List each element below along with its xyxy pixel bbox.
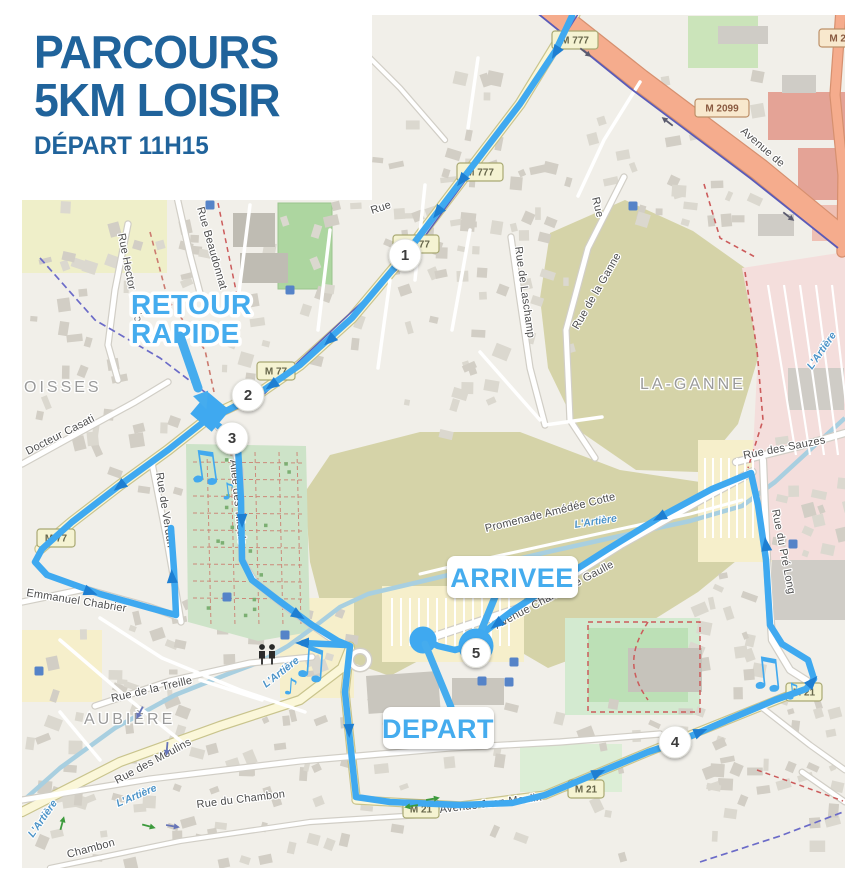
poster-title-line1: PARCOURS [34,28,362,76]
area-label-oisses: OISSES [24,379,102,396]
poster-page: Rue Beaudonnat Rue Hector Berlioz Docteu… [0,0,867,891]
waypoint-2: 2 [232,379,264,411]
svg-text:♪: ♪ [283,674,299,701]
area-label-laganne: LA-GANNE [640,376,746,393]
poster-subtitle-depart-time: DÉPART 11H15 [34,132,362,161]
svg-text:2: 2 [244,387,252,404]
svg-text:3: 3 [228,430,236,447]
waypoint-3: 3 [216,422,248,454]
badge-m2099-corner: M 2099 [819,29,867,47]
retour-rapide-label-line1: RETOUR [131,289,252,320]
poster-title-line2: 5KM LOISIR [34,76,362,124]
badge-m2099: M 2099 [695,99,749,117]
depart-label: DEPART [382,714,494,744]
waypoint-1: 1 [389,239,421,271]
svg-text:M 21: M 21 [575,785,598,796]
waypoint-4: 4 [659,726,691,758]
svg-text:♫: ♫ [744,646,789,701]
title-panel: PARCOURS 5KM LOISIR DÉPART 11H15 [0,0,372,200]
arrivee-label: ARRIVEE [450,563,574,593]
svg-text:4: 4 [671,734,680,751]
waypoint-5-arrivee: 5 [459,629,494,668]
svg-text:5: 5 [472,645,480,662]
svg-text:M 2099: M 2099 [705,104,739,115]
svg-text:1: 1 [401,247,409,264]
svg-text:M 2099: M 2099 [829,34,863,45]
svg-text:♪: ♪ [784,679,801,706]
area-label-aubiere: AUBIÈRE [84,709,175,728]
depart-dot [410,627,437,654]
